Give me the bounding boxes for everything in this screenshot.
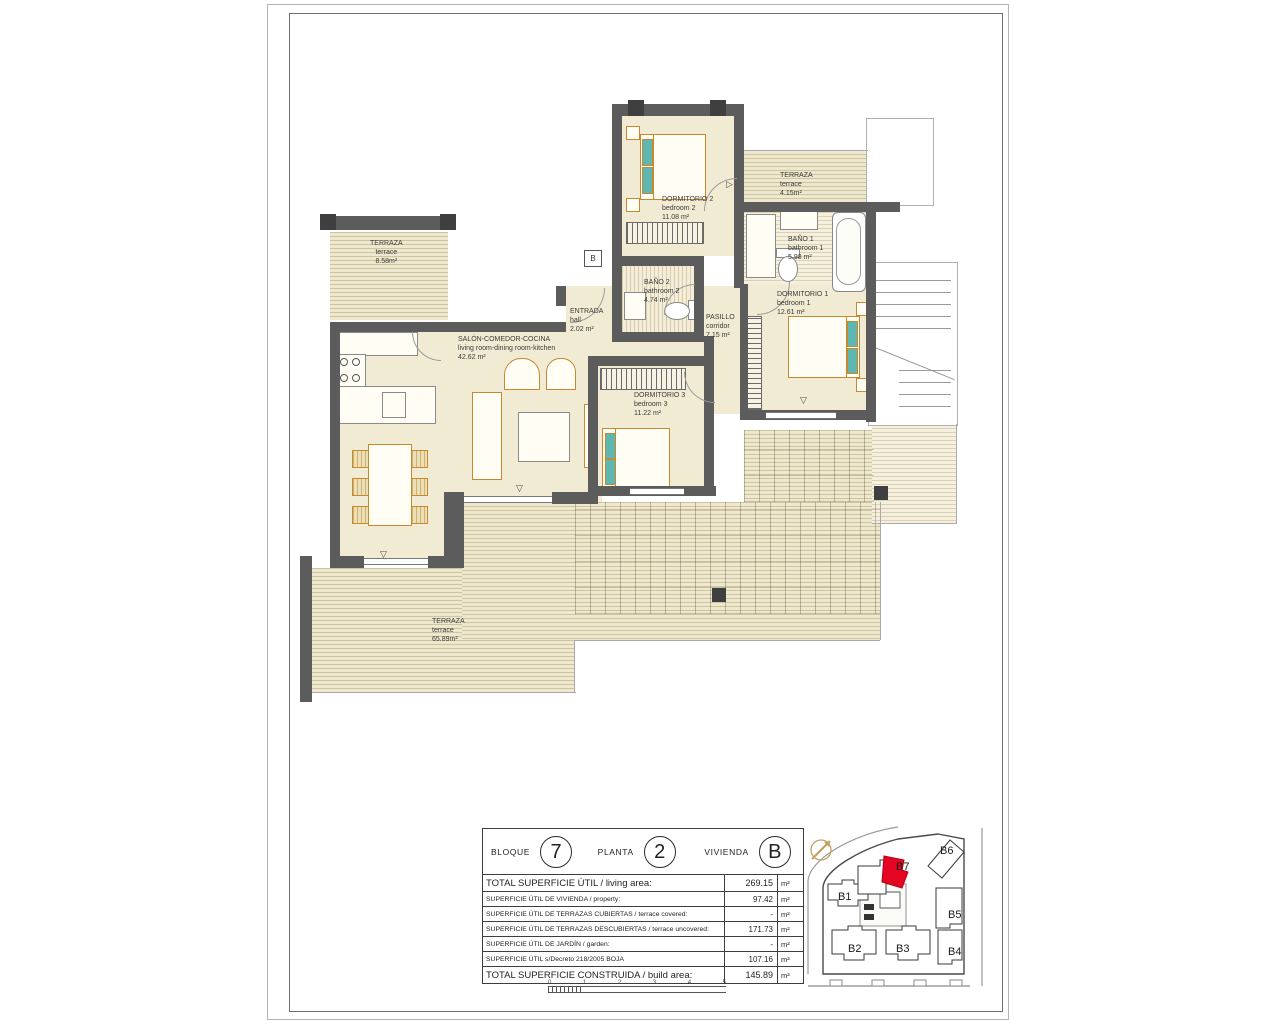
terrace-edge-line xyxy=(574,640,575,693)
room-label-terrace-main: TERRAZA terrace 65.89m² xyxy=(432,618,465,644)
wall-segment xyxy=(300,556,312,702)
site-label-b6: B6 xyxy=(940,845,953,857)
building-detail xyxy=(864,904,874,910)
room-name: TERRAZA xyxy=(432,618,465,627)
row-label: SUPERFICIE ÚTIL s/Decreto 218/2005 BOJA xyxy=(483,952,724,966)
row-value: 97.42 xyxy=(724,892,777,906)
room-area: 5.98 m² xyxy=(788,254,823,263)
title-block-header: BLOQUE 7 PLANTA 2 VIVIENDA B xyxy=(482,828,804,876)
terrace-edge-line xyxy=(312,692,576,693)
window xyxy=(630,488,684,495)
burner xyxy=(352,374,360,382)
deck-east xyxy=(872,424,956,524)
room-name: SALÓN-COMEDOR-COCINA xyxy=(458,336,555,345)
unit-label: VIVIENDA xyxy=(704,847,748,857)
room-name-en: terrace xyxy=(370,249,403,258)
room-name-en: living room-dining room-kitchen xyxy=(458,345,555,354)
wardrobe-bedroom-2 xyxy=(626,222,704,244)
chair xyxy=(352,478,369,496)
room-name: ENTRADA xyxy=(570,308,603,317)
wall-segment xyxy=(694,264,704,336)
row-label: TOTAL SUPERFICIE ÚTIL / living area: xyxy=(483,875,724,891)
burner xyxy=(340,374,348,382)
room-label-bedroom-3: DORMITORIO 3 bedroom 3 11.22 m² xyxy=(634,392,685,418)
window xyxy=(464,496,552,503)
wall-segment xyxy=(704,336,714,496)
room-area: 11.22 m² xyxy=(634,410,685,419)
building-detail xyxy=(864,914,874,920)
terrace-edge-line xyxy=(956,424,957,524)
room-name: PASILLO xyxy=(706,314,735,323)
room-label-bedroom-1: DORMITORIO 1 bedroom 1 12.61 m² xyxy=(777,291,828,317)
road-detail xyxy=(950,980,962,986)
room-name: BAÑO 1 xyxy=(788,236,823,245)
opening-arrow-icon: ▷ xyxy=(726,180,733,189)
unit-section: VIVIENDA B xyxy=(696,836,803,868)
terrace-edge-line xyxy=(574,640,880,641)
wall-segment xyxy=(866,202,876,422)
stair-treads-lower xyxy=(899,359,951,417)
room-area: 8.58m² xyxy=(370,258,403,267)
room-area: 4.15m² xyxy=(780,190,813,199)
row-value: 107.16 xyxy=(724,952,777,966)
table-row: SUPERFICIE ÚTIL DE VIVIENDA / property: … xyxy=(483,891,803,906)
wall-segment xyxy=(444,492,464,504)
row-label: SUPERFICIE ÚTIL DE VIVIENDA / property: xyxy=(483,892,724,906)
table-row: SUPERFICIE ÚTIL DE JARDÍN / garden: - m² xyxy=(483,936,803,951)
area-table: TOTAL SUPERFICIE ÚTIL / living area: 269… xyxy=(482,874,804,984)
room-name-en: bedroom 2 xyxy=(662,205,713,214)
opening-arrow-icon: ▽ xyxy=(800,396,807,405)
scale-bar-hatch xyxy=(548,987,584,992)
room-label-living-room: SALÓN-COMEDOR-COCINA living room-dining … xyxy=(458,336,555,362)
pergola-grid-2 xyxy=(744,430,874,502)
chair xyxy=(352,450,369,468)
scale-bar-line xyxy=(548,986,726,993)
row-value: - xyxy=(724,937,777,951)
block-label: BLOQUE xyxy=(491,847,530,857)
wall-segment xyxy=(588,356,714,366)
wall-segment xyxy=(588,356,598,496)
column xyxy=(320,214,336,230)
site-label-b4: B4 xyxy=(948,946,961,958)
room-label-bathroom-2: BAÑO 2 bathroom 2 4.74 m² xyxy=(644,279,679,305)
chair xyxy=(352,506,369,524)
row-value: 171.73 xyxy=(724,922,777,936)
room-name: TERRAZA xyxy=(370,240,403,249)
room-area: 4.74 m² xyxy=(644,297,679,306)
room-name-en: terrace xyxy=(432,627,465,636)
window xyxy=(766,412,836,419)
unit-letter: B xyxy=(759,836,791,868)
row-label: SUPERFICIE ÚTIL DE TERRAZAS CUBIERTAS / … xyxy=(483,907,724,921)
coffee-table xyxy=(518,412,570,462)
room-name-en: hall xyxy=(570,317,603,326)
row-label: SUPERFICIE ÚTIL DE TERRAZAS DESCUBIERTAS… xyxy=(483,922,724,936)
room-area: 12.61 m² xyxy=(777,309,828,318)
window xyxy=(364,558,428,565)
site-label-b2: B2 xyxy=(848,943,861,955)
row-value: - xyxy=(724,907,777,921)
column xyxy=(874,486,888,500)
pillow xyxy=(847,348,858,374)
wall-segment xyxy=(734,212,744,288)
armchair xyxy=(546,358,576,390)
pillow xyxy=(605,459,616,485)
pillow xyxy=(605,433,616,459)
room-area: 65.89m² xyxy=(432,636,465,645)
pergola-grid xyxy=(575,502,880,614)
room-name-en: bathroom 2 xyxy=(644,288,679,297)
road-detail xyxy=(830,980,842,986)
dining-table xyxy=(368,444,412,526)
table-row: SUPERFICIE ÚTIL DE TERRAZAS CUBIERTAS / … xyxy=(483,906,803,921)
opening-arrow-icon: ▽ xyxy=(380,550,387,559)
room-name-en: bedroom 1 xyxy=(777,300,828,309)
wall-segment xyxy=(330,322,340,558)
table-row: SUPERFICIE ÚTIL s/Decreto 218/2005 BOJA … xyxy=(483,951,803,966)
floor-section: PLANTA 2 xyxy=(590,836,697,868)
room-area: 11.08 m² xyxy=(662,214,713,223)
room-name: DORMITORIO 1 xyxy=(777,291,828,300)
room-name: BAÑO 2 xyxy=(644,279,679,288)
floor-label: PLANTA xyxy=(598,847,634,857)
room-area: 2.02 m² xyxy=(570,326,603,335)
kitchen-sink xyxy=(382,392,406,418)
room-name: TERRAZA xyxy=(780,172,813,181)
site-label-b5: B5 xyxy=(948,909,961,921)
chair xyxy=(411,506,428,524)
wall-segment xyxy=(320,216,456,230)
room-name: DORMITORIO 3 xyxy=(634,392,685,401)
chair xyxy=(411,450,428,468)
terrace-edge-line xyxy=(744,150,868,151)
column xyxy=(712,588,726,602)
wardrobe-bedroom-3 xyxy=(600,368,686,390)
sink-bathroom-2 xyxy=(624,292,646,320)
wall-segment xyxy=(556,286,566,306)
bathtub-inner xyxy=(836,218,861,285)
road-detail xyxy=(872,980,884,986)
wall-segment xyxy=(740,284,748,416)
wall-segment xyxy=(740,202,900,212)
kitchen-counter xyxy=(336,332,418,356)
room-name-en: bedroom 3 xyxy=(634,401,685,410)
room-label-terrace-415: TERRAZA terrace 4.15m² xyxy=(780,172,813,198)
room-label-bathroom-1: BAÑO 1 bathroom 1 5.98 m² xyxy=(788,236,823,262)
entry-marker: B xyxy=(584,250,602,267)
wall-segment xyxy=(612,332,704,342)
site-plan: B1 B2 B3 B4 B5 B6 B7 xyxy=(800,826,1000,1012)
staircase-area xyxy=(868,262,958,426)
block-number: 7 xyxy=(540,836,572,868)
room-name-en: bathroom 1 xyxy=(788,245,823,254)
room-name-en: terrace xyxy=(780,181,813,190)
room-name: DORMITORIO 2 xyxy=(662,196,713,205)
row-value: 145.89 xyxy=(724,967,777,983)
sofa xyxy=(472,392,502,480)
block-section: BLOQUE 7 xyxy=(483,836,590,868)
burner xyxy=(352,358,360,366)
room-name-en: corridor xyxy=(706,323,735,332)
pillow xyxy=(642,139,653,166)
exterior-canopy-area xyxy=(866,118,934,206)
wall-segment xyxy=(612,104,622,342)
room-area: 42.62 m² xyxy=(458,354,555,363)
pillow xyxy=(642,167,653,194)
column xyxy=(628,100,644,116)
site-label-b3: B3 xyxy=(896,943,909,955)
wall-segment xyxy=(330,322,566,332)
room-label-corridor: PASILLO corridor 7.15 m² xyxy=(706,314,735,340)
stair-treads xyxy=(873,269,951,335)
floor-number: 2 xyxy=(644,836,676,868)
burner xyxy=(340,358,348,366)
scale-bar: 0 1 2 3 4 5 xyxy=(548,980,726,993)
nightstand xyxy=(626,126,640,140)
terrace-edge-line xyxy=(872,523,956,524)
room-label-hall: ENTRADA hall 2.02 m² xyxy=(570,308,603,334)
road-detail xyxy=(914,980,926,986)
shower-bathroom-1 xyxy=(746,214,776,278)
site-label-b7: B7 xyxy=(896,861,909,873)
room-label-terrace-tl: TERRAZA terrace 8.58m² xyxy=(370,240,403,266)
drawing-sheet: ▽ ▽ ▽ ▷ B TERRAZA terrace 8.58m² DORMITO… xyxy=(0,0,1280,1024)
wall-segment xyxy=(612,256,704,266)
room-label-bedroom-2: DORMITORIO 2 bedroom 2 11.08 m² xyxy=(662,196,713,222)
nightstand xyxy=(626,198,640,212)
wall-segment xyxy=(330,556,364,568)
site-label-b1: B1 xyxy=(838,891,851,903)
armchair xyxy=(504,358,540,390)
pillow xyxy=(847,321,858,347)
column xyxy=(440,214,456,230)
table-row: TOTAL SUPERFICIE ÚTIL / living area: 269… xyxy=(483,875,803,891)
row-value: 269.15 xyxy=(724,875,777,891)
room-area: 7.15 m² xyxy=(706,332,735,341)
building-b5 xyxy=(936,888,962,928)
chair xyxy=(411,478,428,496)
table-row: SUPERFICIE ÚTIL DE TERRAZAS DESCUBIERTAS… xyxy=(483,921,803,936)
column xyxy=(710,100,726,116)
opening-arrow-icon: ▽ xyxy=(516,484,523,493)
row-label: SUPERFICIE ÚTIL DE JARDÍN / garden: xyxy=(483,937,724,951)
